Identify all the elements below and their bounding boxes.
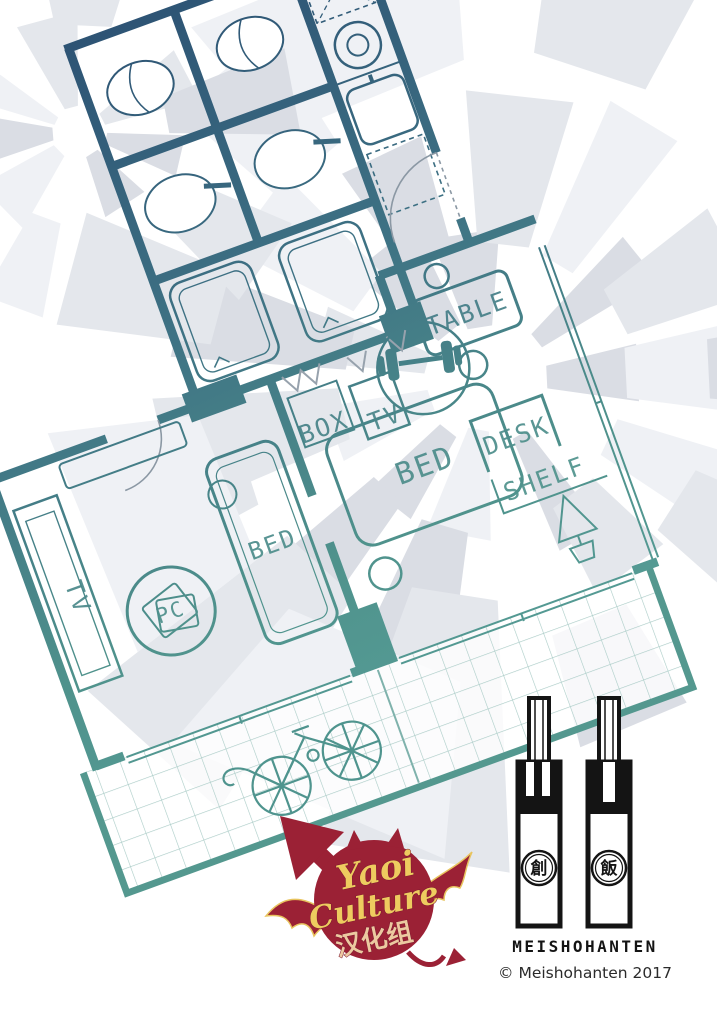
meishohanten-wordmark: MEISHOHANTEN <box>512 937 658 956</box>
bed-small-label: BED <box>245 523 301 566</box>
plant-icon <box>545 489 606 567</box>
bed-small: BED <box>203 437 341 647</box>
pc-icon: PC <box>115 555 228 668</box>
room-door-arc <box>106 420 176 490</box>
meishohanten-copyright: © Meishohanten 2017 <box>500 964 672 982</box>
seal-right-kanji: 飯 <box>600 858 618 879</box>
sunburst-wedge <box>534 0 717 90</box>
pen-right-icon: 飯 <box>588 698 630 926</box>
seal-left-kanji: 創 <box>530 858 548 879</box>
stove-burner-icon <box>328 16 387 75</box>
shower-icons <box>166 218 391 385</box>
page: BOX TV BED <box>0 0 717 1012</box>
desk-label: DESK <box>479 411 553 462</box>
yaoi-culture-logo: Yaoi Culture 汉化组 <box>258 800 478 978</box>
devil-tail-icon <box>408 948 466 966</box>
bed-large-label: BED <box>391 439 460 492</box>
meishohanten-logo: 創 飯 MEISHOHANTEN © Meishohanten 2017 <box>500 696 676 996</box>
low-counter <box>58 411 240 557</box>
pen-left-icon: 創 <box>518 698 560 926</box>
box-label: BOX <box>295 405 353 450</box>
